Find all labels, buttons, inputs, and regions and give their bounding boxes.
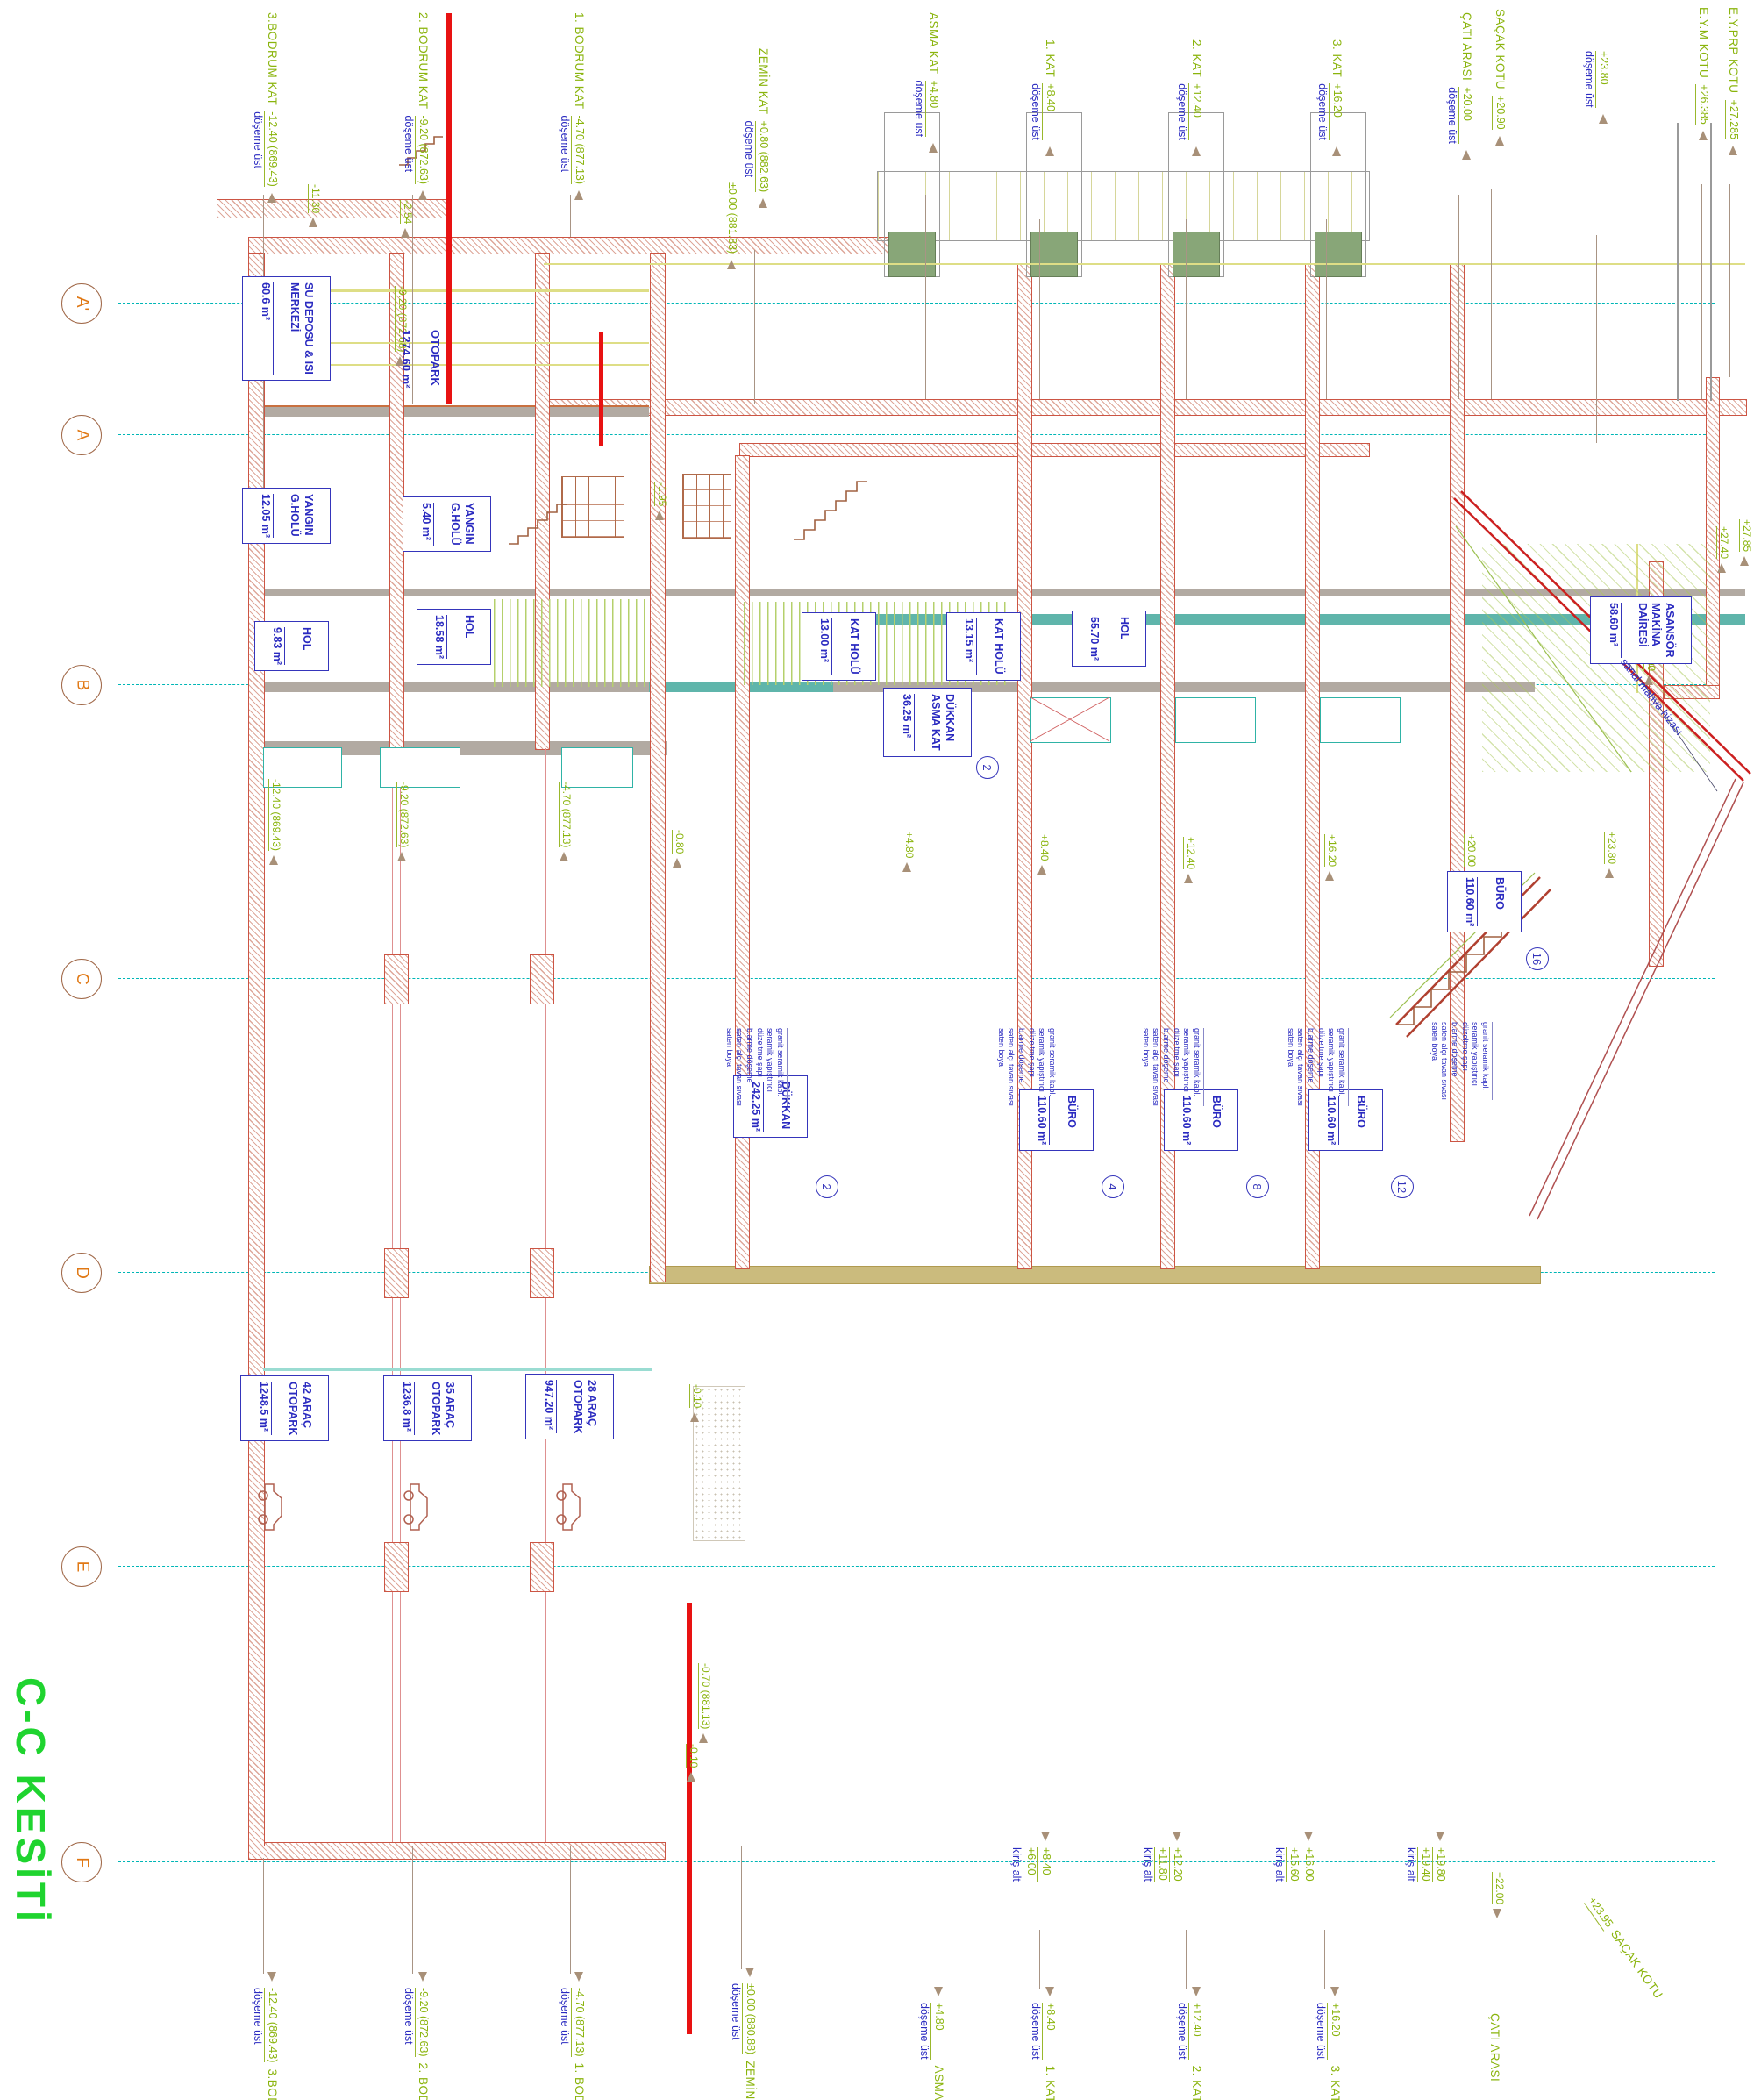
stair-runs bbox=[399, 137, 1519, 1025]
beam-elevation: +15.60 bbox=[1286, 1847, 1301, 1882]
level-sub: döşeme üst bbox=[912, 81, 925, 138]
elevation-marker-icon bbox=[418, 190, 427, 200]
level-elevation: +20.00 bbox=[1458, 87, 1473, 144]
level-name: E.Y.PRP KOTU bbox=[1727, 7, 1740, 94]
room-label-otopark-35: 35 ARAÇ OTOPARK 1236.8 m² bbox=[384, 1375, 473, 1441]
level-sub: döşeme üst bbox=[251, 111, 264, 186]
spot-value: +27.85 bbox=[1739, 519, 1753, 552]
level-elevation: ±0.00 (881.83) bbox=[724, 182, 738, 254]
room-area: 5.40 m² bbox=[419, 503, 434, 546]
elevation-marker-icon bbox=[1741, 556, 1750, 566]
spot-value: -0.80 bbox=[672, 830, 686, 854]
level-name: 3.BODRUM KAT bbox=[266, 12, 279, 105]
leader-line bbox=[1324, 1930, 1325, 1989]
spot-value: +27.40 bbox=[1716, 526, 1730, 559]
level-elevation: -9.20 (872.63) bbox=[415, 1988, 430, 2057]
leader-line bbox=[412, 1846, 413, 1974]
level-name: ÇATI ARASI bbox=[1460, 12, 1473, 81]
spot-value: -12.40 (869.43) bbox=[268, 779, 282, 851]
elevation-marker-icon bbox=[1326, 871, 1335, 881]
level-elevation: +12.40 bbox=[1188, 2003, 1203, 2060]
elevation-marker-icon bbox=[1729, 146, 1737, 155]
elevation-marker-icon bbox=[310, 218, 318, 227]
room-label-hol-3: HOL 55.70 m² bbox=[1072, 611, 1146, 667]
room-area: 1274.60 m² bbox=[400, 330, 413, 389]
room-area: 55.70 m² bbox=[1087, 617, 1102, 661]
elevation-marker-icon bbox=[1462, 150, 1471, 160]
level-label-bottom: ÇATI ARASI bbox=[1488, 2013, 1501, 2082]
level-name: SAÇAK KOTU bbox=[1494, 9, 1507, 89]
elevation-marker-icon bbox=[688, 1772, 696, 1782]
room-name: DÜKKAN ASMA KAT bbox=[929, 694, 956, 751]
finish-notes-buro-12: granit seramik kapl. seramik yapıştırıcı… bbox=[1285, 1028, 1349, 1106]
room-name: HOL bbox=[1117, 617, 1130, 661]
level-sub: döşeme üst bbox=[1314, 2003, 1327, 2060]
room-area: 18.58 m² bbox=[432, 615, 447, 659]
beam-elevation: +11.80 bbox=[1154, 1847, 1169, 1882]
level-label-bottom: ±0.00 (880.88)döşeme üst ZEMİN KAT bbox=[729, 1968, 757, 2100]
level-label-top: 2. KAT +12.40döşeme üst bbox=[1175, 39, 1203, 156]
room-name: BÜRO bbox=[1354, 1096, 1367, 1145]
level-label-bottom: +4.80döşeme üst ASMA KAT bbox=[917, 1987, 945, 2100]
room-tag-circle: 8 bbox=[1246, 1175, 1269, 1198]
level-name: ZEMİN KAT bbox=[757, 48, 770, 115]
elevation-marker-icon bbox=[1494, 1909, 1502, 1918]
room-tag: 12 bbox=[1396, 1181, 1409, 1193]
room-name: KAT HOLÜ bbox=[992, 618, 1005, 675]
level-elevation: -12.40 (869.43) bbox=[264, 111, 279, 186]
room-label-otopark-28: 28 ARAÇ OTOPARK 947.20 m² bbox=[526, 1374, 615, 1439]
level-label-top: 1. BODRUM KAT -4.70 (877.13)döşeme üst bbox=[558, 12, 586, 200]
level-sub: döşeme üst bbox=[1029, 83, 1042, 140]
spot-elevation: -11.30 bbox=[308, 184, 322, 227]
room-tag-circle: 12 bbox=[1391, 1175, 1414, 1198]
level-elevation: +8.40 bbox=[1042, 2003, 1057, 2060]
level-elevation: +20.90 bbox=[1492, 96, 1507, 130]
room-name: KAT HOLÜ bbox=[847, 618, 860, 675]
room-name: HOL bbox=[300, 627, 313, 665]
room-name: BÜRO bbox=[1209, 1096, 1223, 1145]
level-name: 3. KAT bbox=[1330, 39, 1344, 77]
level-name: 3. KAT bbox=[1329, 2066, 1342, 2100]
spot-value: +16.20 bbox=[1324, 834, 1338, 867]
spot-value: +22.00 bbox=[1492, 1872, 1506, 1904]
beam-label: kiriş alt bbox=[1009, 1847, 1023, 1882]
beam-marker-group: +19.80+19.40kiriş alt bbox=[1404, 1832, 1447, 1882]
level-elevation: +26.385 bbox=[1695, 84, 1710, 125]
room-label-kat-holu-1: KAT HOLÜ 13.00 m² bbox=[802, 612, 876, 681]
level-label-bottom: -9.20 (872.63)döşeme üst 2. BODRUM KAT bbox=[402, 1972, 430, 2100]
room-area: 36.25 m² bbox=[900, 694, 915, 751]
room-tag: 2 bbox=[821, 1183, 834, 1189]
leader-line bbox=[570, 195, 571, 237]
level-elevation: -4.70 (877.13) bbox=[571, 116, 586, 185]
level-sub: döşeme üst bbox=[251, 1988, 264, 2062]
elevation-marker-icon bbox=[398, 852, 407, 861]
level-label-top: ±0.00 (881.83) bbox=[724, 182, 738, 269]
facade-slope-lines bbox=[1529, 779, 1743, 1219]
level-elevation: +27.285 bbox=[1725, 100, 1740, 140]
level-label-top: E.Y.M KOTU +26.385 bbox=[1695, 7, 1710, 140]
level-sub: döşeme üst bbox=[558, 116, 571, 185]
spot-elevation: +23.80 bbox=[1604, 832, 1618, 878]
room-area: 13.15 m² bbox=[962, 618, 977, 675]
elevation-marker-icon bbox=[1192, 1987, 1201, 1996]
leader-line bbox=[1186, 1930, 1187, 1989]
level-elevation: +4.80 bbox=[930, 2003, 945, 2060]
room-name: 42 ARAÇ OTOPARK bbox=[286, 1382, 313, 1435]
room-name: YANGIN G.HOLÜ bbox=[288, 494, 315, 538]
elevation-marker-icon bbox=[574, 1972, 583, 1982]
level-elevation: +4.80 bbox=[925, 81, 940, 138]
leader-line bbox=[754, 250, 755, 404]
elevation-marker-icon bbox=[934, 1987, 943, 1996]
level-sub: döşeme üst bbox=[1175, 83, 1188, 140]
level-label-bottom: +12.40döşeme üst 2. KAT bbox=[1175, 1987, 1203, 2100]
spot-elevation: +16.20 bbox=[1324, 834, 1338, 881]
room-area: 60.6 m² bbox=[259, 282, 274, 375]
level-elevation: ±0.00 (880.88) bbox=[742, 1983, 757, 2054]
beam-label: kiriş alt bbox=[1404, 1847, 1417, 1882]
level-sub: döşeme üst bbox=[1175, 2003, 1188, 2060]
level-name: 1. BODRUM KAT bbox=[573, 2063, 586, 2100]
spot-elevation: +27.85 bbox=[1739, 519, 1753, 566]
leader-line bbox=[263, 1858, 264, 1974]
spot-value: +23.80 bbox=[1604, 832, 1618, 864]
level-elevation: -12.40 (869.43) bbox=[264, 1988, 279, 2062]
level-label-bottom: -12.40 (869.43)döşeme üst 3.BODRUM KAT bbox=[251, 1972, 279, 2100]
spot-value: +20.00 bbox=[1464, 834, 1478, 867]
level-label-bottom: +8.40döşeme üst 1. KAT bbox=[1029, 1987, 1057, 2100]
level-label-top: 3.BODRUM KAT -12.40 (869.43)döşeme üst bbox=[251, 12, 279, 203]
level-label-top: ÇATI ARASI +20.00döşeme üst bbox=[1445, 12, 1473, 160]
elevation-marker-icon bbox=[1304, 1832, 1313, 1841]
spot-value: -9.20 (872.63) bbox=[396, 782, 410, 847]
level-name: 1. KAT bbox=[1044, 39, 1057, 77]
room-tag-circle: 16 bbox=[1526, 947, 1549, 970]
level-sub: döşeme üst bbox=[1029, 2003, 1042, 2060]
spot-value: -11.30 bbox=[308, 184, 322, 213]
level-name: 2. KAT bbox=[1190, 39, 1203, 77]
room-name: YANGIN G.HOLÜ bbox=[448, 503, 475, 546]
spot-elevation: -0.10 bbox=[689, 1384, 703, 1422]
room-tag: 2 bbox=[981, 764, 995, 770]
leader-line bbox=[1701, 184, 1702, 399]
room-label-otopark-42: 42 ARAÇ OTOPARK 1248.5 m² bbox=[241, 1375, 330, 1441]
beam-label: kiriş alt bbox=[1141, 1847, 1154, 1882]
spot-elevation: -0.80 bbox=[672, 830, 686, 868]
room-tag-circle: 4 bbox=[1102, 1175, 1124, 1198]
leader-line bbox=[1039, 1930, 1040, 1989]
leader-line bbox=[570, 1846, 571, 1974]
elevation-marker-icon bbox=[691, 1412, 700, 1422]
spot-elevation: +27.40 bbox=[1716, 526, 1730, 573]
elevation-marker-icon bbox=[903, 862, 912, 872]
room-tag-circle: 2 bbox=[976, 756, 999, 779]
beam-elevation: +6.00 bbox=[1023, 1847, 1037, 1882]
level-label-bottom: -4.70 (877.13)döşeme üst 1. BODRUM KAT bbox=[558, 1972, 586, 2100]
room-name: ASANSÖR MAKİNA DAİRESİ bbox=[1636, 603, 1676, 658]
beam-elevation: +19.40 bbox=[1417, 1847, 1432, 1882]
elevation-marker-icon bbox=[267, 1972, 276, 1982]
spot-elevation: -0.10 bbox=[686, 1744, 700, 1782]
elevation-marker-icon bbox=[1699, 131, 1708, 140]
level-elevation: +0.80 (882.63) bbox=[755, 121, 770, 193]
level-label-top: 1. KAT +8.40döşeme üst bbox=[1029, 39, 1057, 156]
room-label-su-deposu: SU DEPOSU & ISI MERKEZİ 60.6 m² bbox=[243, 276, 332, 381]
elevation-marker-icon bbox=[1192, 146, 1201, 156]
level-sub: döşeme üst bbox=[402, 1988, 415, 2057]
elevation-marker-icon bbox=[1173, 1832, 1181, 1841]
spot-value: +12.40 bbox=[1183, 837, 1197, 869]
drawing-canvas: A' A B C D E F C-C KESİTİ bbox=[0, 0, 1754, 2100]
level-elevation: +8.40 bbox=[1042, 83, 1057, 140]
spot-elevation: -0.70 (881.13) bbox=[698, 1663, 712, 1743]
level-name: 3.BODRUM KAT bbox=[266, 2068, 279, 2100]
level-name: 1. BODRUM KAT bbox=[573, 12, 586, 110]
room-name: OTOPARK bbox=[429, 330, 442, 386]
leader-line bbox=[1491, 189, 1492, 399]
level-name: E.Y.M KOTU bbox=[1697, 7, 1710, 78]
beam-label: kiriş alt bbox=[1273, 1847, 1286, 1882]
elevation-marker-icon bbox=[674, 858, 682, 868]
level-name: ÇATI ARASI bbox=[1488, 2013, 1501, 2082]
elevation-marker-icon bbox=[727, 260, 736, 269]
spot-value: +8.40 bbox=[1037, 834, 1051, 861]
spot-elevation: -2.54 bbox=[400, 200, 414, 238]
elevation-marker-icon bbox=[1045, 146, 1054, 156]
room-area: 947.20 m² bbox=[542, 1380, 557, 1433]
elevation-marker-icon bbox=[574, 190, 583, 200]
level-elevation: +16.20 bbox=[1327, 2003, 1342, 2060]
level-sub: döşeme üst bbox=[917, 2003, 930, 2060]
level-name: ASMA KAT bbox=[927, 12, 940, 75]
spot-elevation: -4.70 (877.13) bbox=[559, 782, 573, 861]
spot-elevation: -1.95 bbox=[654, 482, 668, 520]
level-name: 2. BODRUM KAT bbox=[417, 2063, 430, 2100]
leader-line bbox=[1039, 219, 1040, 399]
spot-elevation: +4.80 bbox=[902, 832, 916, 872]
level-sub: döşeme üst bbox=[1445, 87, 1458, 144]
room-area: 58.60 m² bbox=[1607, 603, 1622, 658]
elevation-marker-icon bbox=[1718, 563, 1727, 573]
beam-elevation: +12.20 bbox=[1169, 1847, 1184, 1882]
spot-value: -0.10 bbox=[689, 1384, 703, 1408]
level-sub: döşeme üst bbox=[729, 1983, 742, 2054]
elevation-marker-icon bbox=[1041, 1832, 1050, 1841]
leader-line bbox=[1186, 219, 1187, 399]
level-elevation: -4.70 (877.13) bbox=[571, 1988, 586, 2057]
level-label-top: E.Y.PRP KOTU +27.285 bbox=[1725, 7, 1740, 155]
level-label-top: ZEMİN KAT +0.80 (882.63)döşeme üst bbox=[742, 48, 770, 208]
elevation-marker-icon bbox=[1045, 1987, 1054, 1996]
room-area: 1248.5 m² bbox=[257, 1382, 272, 1435]
spot-elevation: +22.00 bbox=[1492, 1872, 1506, 1918]
spot-value: -2.54 bbox=[400, 200, 414, 224]
beam-marker-group: +8.40+6.00kiriş alt bbox=[1009, 1832, 1052, 1882]
room-name: 28 ARAÇ OTOPARK bbox=[571, 1380, 598, 1433]
beam-marker-group: +12.20+11.80kiriş alt bbox=[1141, 1832, 1184, 1882]
finish-notes-buro-8: granit seramik kapl. seramik yapıştırıcı… bbox=[1140, 1028, 1204, 1106]
elevation-marker-icon bbox=[700, 1733, 709, 1743]
room-label-hol-1: HOL 9.83 m² bbox=[254, 621, 329, 671]
room-label-kat-holu-2: KAT HOLÜ 13.15 m² bbox=[946, 612, 1021, 681]
level-elevation: -9.20 (872.63) bbox=[415, 116, 430, 185]
level-name: ZEMİN KAT bbox=[744, 2061, 757, 2100]
elevation-marker-icon bbox=[745, 1968, 754, 1977]
room-label-dukkan-asma: DÜKKAN ASMA KAT 36.25 m² bbox=[884, 688, 973, 757]
elevation-marker-icon bbox=[1330, 1987, 1339, 1996]
spot-elevation: -9.20 (872.63) bbox=[396, 782, 410, 861]
level-elevation: +16.20 bbox=[1329, 83, 1344, 140]
room-name: HOL bbox=[462, 615, 475, 659]
level-label-top: 3. KAT +16.20döşeme üst bbox=[1315, 39, 1344, 156]
level-label-bottom: +16.20döşeme üst 3. KAT bbox=[1314, 1987, 1342, 2100]
level-label-top: ASMA KAT +4.80döşeme üst bbox=[912, 12, 940, 153]
elevation-marker-icon bbox=[1495, 136, 1504, 146]
finish-notes-buro-4: granit seramik kapl. seramik yapıştırıcı… bbox=[995, 1028, 1059, 1106]
room-name: 35 ARAÇ OTOPARK bbox=[429, 1382, 456, 1435]
finish-notes-attic: granit seramik kapl. seramik yapıştırıcı… bbox=[1429, 1022, 1493, 1100]
car-symbols bbox=[259, 1484, 580, 1530]
room-label-yangin-1: YANGIN G.HOLÜ 12.05 m² bbox=[243, 488, 332, 544]
leader-line bbox=[1729, 184, 1730, 377]
spot-elevation: +12.40 bbox=[1183, 837, 1197, 883]
room-area: 9.83 m² bbox=[270, 627, 285, 665]
room-area: 12.05 m² bbox=[259, 494, 274, 538]
spot-value: -1.95 bbox=[654, 482, 668, 506]
level-elevation: +12.40 bbox=[1188, 83, 1203, 140]
beam-elevation: +19.80 bbox=[1432, 1847, 1447, 1882]
elevation-marker-icon bbox=[759, 198, 767, 208]
elevation-marker-icon bbox=[402, 228, 410, 238]
beam-elevation: +8.40 bbox=[1037, 1847, 1052, 1882]
elevation-marker-icon bbox=[418, 1972, 427, 1982]
level-sub: döşeme üst bbox=[558, 1988, 571, 2057]
room-name: BÜRO bbox=[1493, 877, 1506, 926]
elevation-marker-icon bbox=[929, 143, 938, 153]
room-label-hol-2: HOL 18.58 m² bbox=[417, 609, 491, 665]
room-tag: 16 bbox=[1531, 953, 1544, 965]
beam-elevation: +16.00 bbox=[1301, 1847, 1315, 1882]
level-elevation: +23.80 bbox=[1595, 51, 1610, 108]
leader-line bbox=[1458, 195, 1459, 399]
level-sub: döşeme üst bbox=[1315, 83, 1329, 140]
room-tag-circle: 2 bbox=[816, 1175, 838, 1198]
level-label-top: SAÇAK KOTU +20.90 bbox=[1492, 9, 1507, 146]
leader-line bbox=[1596, 235, 1597, 443]
leader-line bbox=[1326, 219, 1327, 399]
level-sub: döşeme üst bbox=[742, 121, 755, 193]
level-sub: döşeme üst bbox=[1582, 51, 1595, 108]
elevation-marker-icon bbox=[1038, 865, 1047, 875]
room-area: 110.60 m² bbox=[1463, 877, 1478, 926]
elevation-marker-icon bbox=[656, 511, 665, 520]
spot-elevation: -12.40 (869.43) bbox=[268, 779, 282, 865]
spot-value: -0.70 (881.13) bbox=[698, 1663, 712, 1729]
beam-marker-group: +16.00+15.60kiriş alt bbox=[1273, 1832, 1315, 1882]
level-label-top: +23.80döşeme üst bbox=[1582, 51, 1610, 124]
level-name: 2. BODRUM KAT bbox=[417, 12, 430, 110]
level-name: ASMA KAT bbox=[932, 2066, 945, 2100]
room-area: 1236.8 m² bbox=[400, 1382, 415, 1435]
door-cross bbox=[1030, 697, 1109, 741]
elevation-marker-icon bbox=[267, 193, 276, 203]
spot-value: -0.10 bbox=[686, 1744, 700, 1768]
room-tag: 8 bbox=[1251, 1183, 1265, 1189]
elevation-marker-icon bbox=[1606, 868, 1615, 878]
level-sub: döşeme üst bbox=[402, 116, 415, 185]
leader-line bbox=[930, 1846, 930, 1989]
room-area: 13.00 m² bbox=[817, 618, 832, 675]
elevation-marker-icon bbox=[1332, 146, 1341, 156]
room-name: BÜRO bbox=[1065, 1096, 1078, 1145]
leader-line bbox=[925, 195, 926, 399]
room-label-otopark-1: OTOPARK 1274.60 m² bbox=[399, 330, 456, 389]
spot-value: +4.80 bbox=[902, 832, 916, 858]
spot-elevation: +8.40 bbox=[1037, 834, 1051, 875]
room-label-buro-16: BÜRO 110.60 m² bbox=[1447, 871, 1522, 932]
elevation-marker-icon bbox=[270, 855, 279, 865]
leader-line bbox=[741, 1846, 742, 1969]
elevation-marker-icon bbox=[1599, 114, 1608, 124]
level-name: 1. KAT bbox=[1044, 2066, 1057, 2100]
room-name: SU DEPOSU & ISI MERKEZİ bbox=[288, 282, 315, 375]
room-tag: 4 bbox=[1107, 1183, 1120, 1189]
finish-notes-dukkan: granit seramik kapl. seramik yapıştırıcı… bbox=[724, 1028, 788, 1106]
elevation-marker-icon bbox=[1436, 1832, 1444, 1841]
level-label-top: 2. BODRUM KAT -9.20 (872.63)döşeme üst bbox=[402, 12, 430, 200]
spot-value: -4.70 (877.13) bbox=[559, 782, 573, 847]
elevation-marker-icon bbox=[1185, 874, 1194, 883]
level-name: 2. KAT bbox=[1190, 2066, 1203, 2100]
room-label-yangin-2: YANGIN G.HOLÜ 5.40 m² bbox=[403, 496, 492, 552]
room-label-asansor: ASANSÖR MAKİNA DAİRESİ 58.60 m² bbox=[1590, 596, 1692, 664]
elevation-marker-icon bbox=[560, 852, 569, 861]
